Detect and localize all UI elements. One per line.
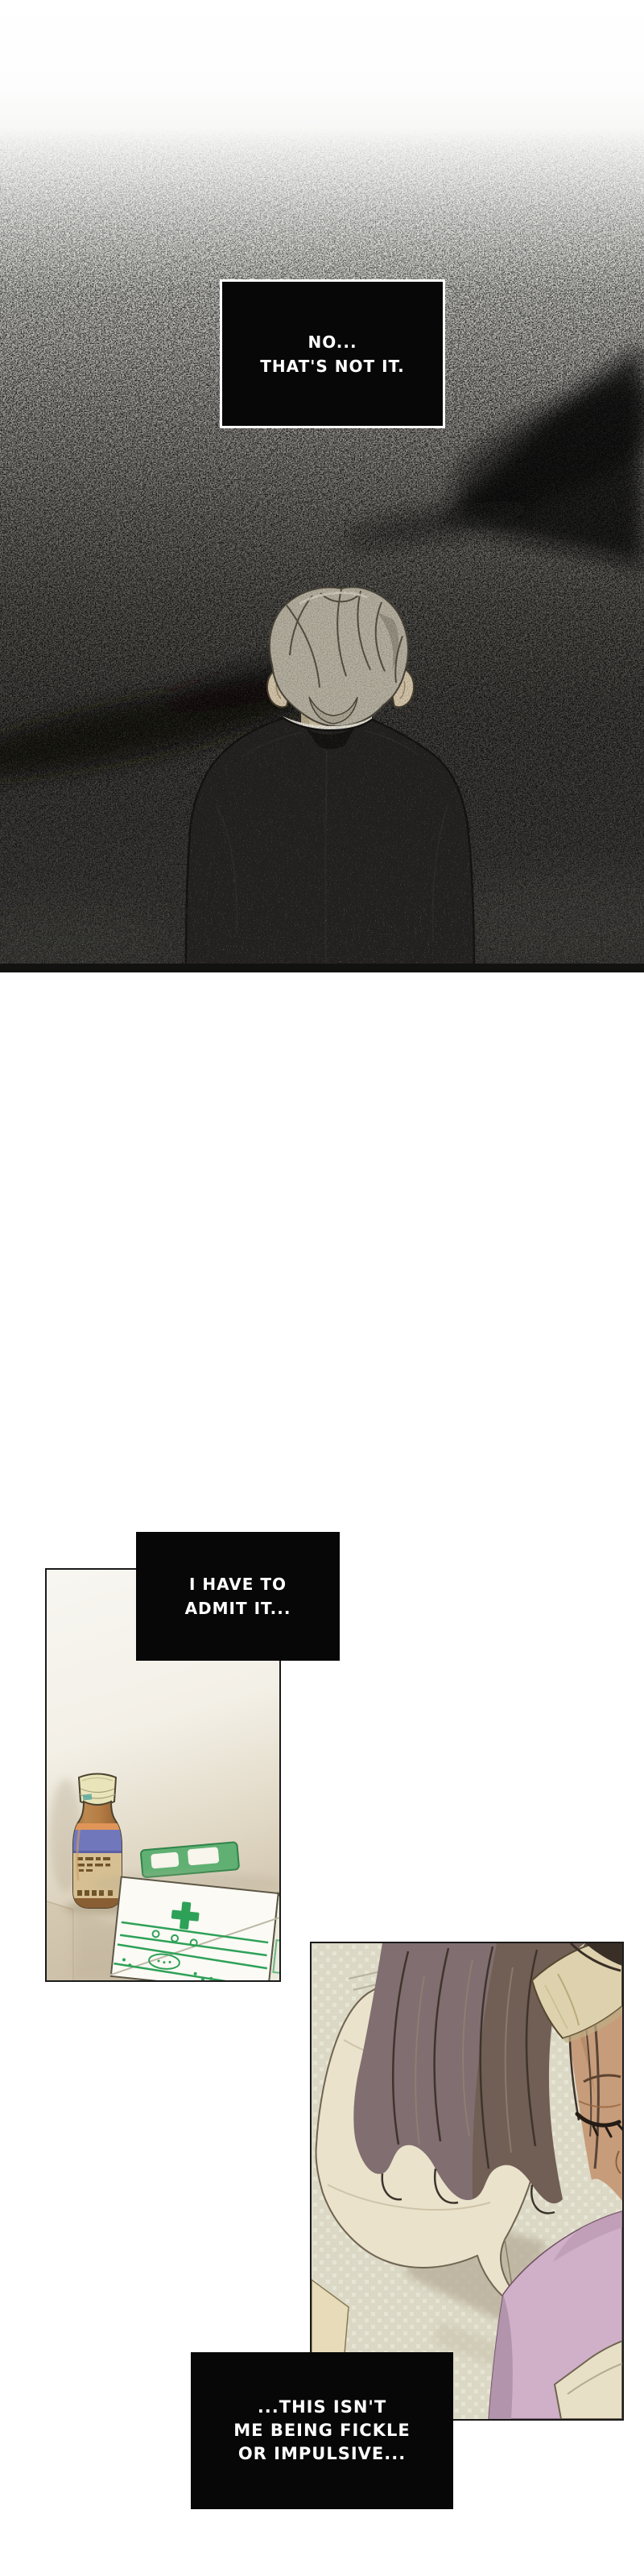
caption-line: NO... [308,330,357,354]
caption-line: OR IMPULSIVE... [238,2442,406,2466]
panel-bottom-border-bar [0,964,644,972]
caption-line: ...THIS ISN'T [258,2396,386,2419]
panel-memory-noise: NO... THAT'S NOT IT. [0,0,644,972]
kit-box-top-face [111,1877,279,1980]
comic-page: NO... THAT'S NOT IT. [0,0,644,2576]
caption-line: THAT'S NOT IT. [260,354,404,378]
caption-line: ADMIT IT... [185,1596,291,1620]
white-grain-layer [0,0,644,972]
caption-box-1: NO... THAT'S NOT IT. [220,279,445,428]
green-bandage-tin [141,1842,240,1877]
sleeping-panel-art [312,1943,622,2419]
first-aid-kit-box [107,1876,279,1980]
bottle-cap-teal-mark [83,1794,93,1800]
memory-panel-art [0,0,644,972]
bottle-cap [79,1774,116,1806]
bandage-white-tab [151,1852,179,1869]
caption-box-2: I HAVE TO ADMIT IT... [136,1532,340,1661]
panel-sleeping-person [310,1942,624,2421]
caption-line: I HAVE TO [189,1572,287,1596]
caption-line: ME BEING FICKLE [233,2419,410,2442]
bottle-blue-band [73,1830,122,1853]
bandage-white-tab [188,1847,220,1865]
caption-box-3: ...THIS ISN'T ME BEING FICKLE OR IMPULSI… [191,2352,453,2509]
